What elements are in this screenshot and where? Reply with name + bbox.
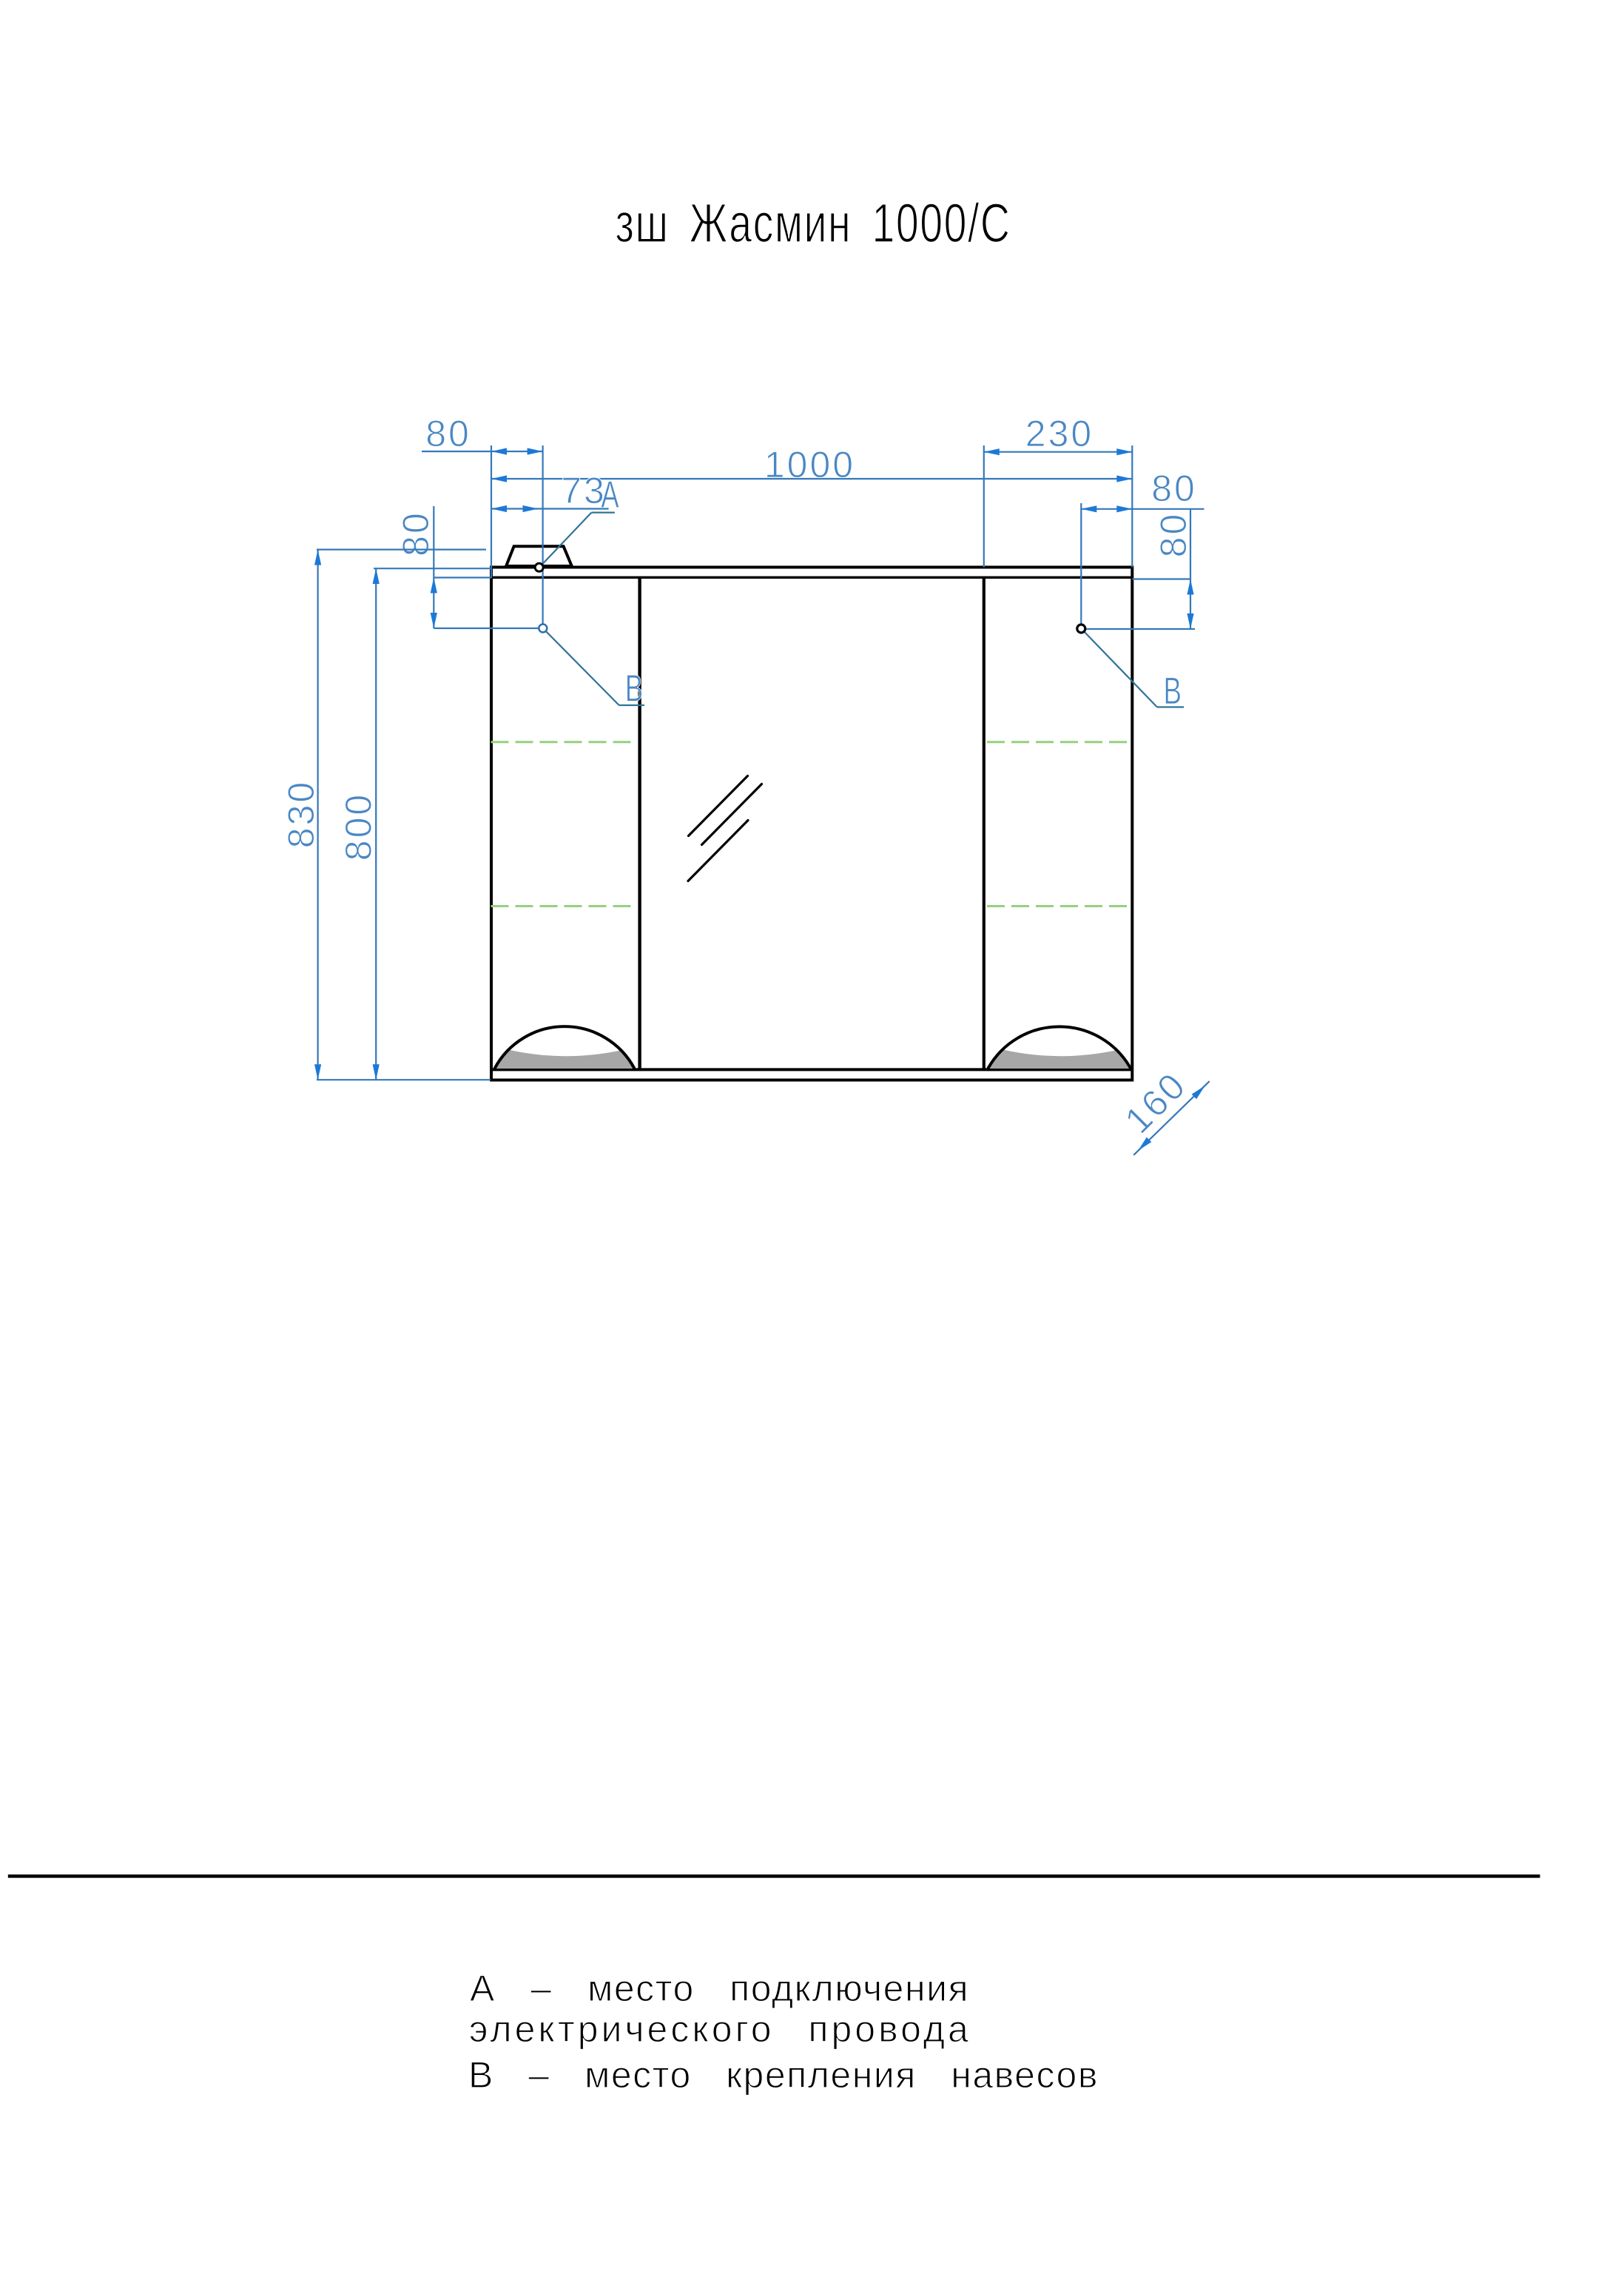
svg-text:А – место подключения: А – место подключения — [470, 1968, 969, 2009]
svg-text:160: 160 — [1116, 1063, 1194, 1141]
svg-text:80: 80 — [425, 413, 471, 454]
svg-text:В – место крепления навесов: В – место крепления навесов — [468, 2054, 1099, 2096]
svg-text:В: В — [625, 668, 643, 710]
svg-text:800: 800 — [338, 793, 380, 861]
svg-text:электрического провода: электрического провода — [469, 2008, 971, 2050]
svg-text:80: 80 — [1151, 468, 1197, 509]
svg-text:73: 73 — [561, 470, 607, 511]
svg-text:А: А — [601, 474, 619, 516]
svg-text:830: 830 — [280, 780, 322, 848]
svg-text:80: 80 — [1153, 512, 1194, 558]
svg-text:1000: 1000 — [764, 444, 855, 485]
svg-text:зш Жасмин 1000/С: зш Жасмин 1000/С — [616, 192, 1011, 254]
svg-text:230: 230 — [1025, 413, 1094, 454]
svg-text:В: В — [1163, 670, 1181, 712]
